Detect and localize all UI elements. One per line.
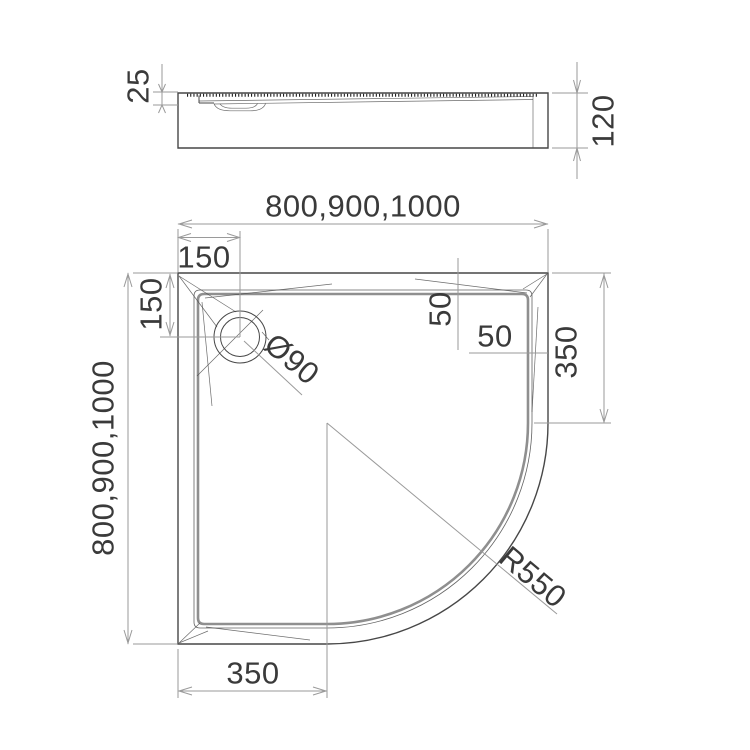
plan-dimensions: 800,900,1000 150 800,900,1000 150 50 50: [86, 189, 612, 699]
dim-corner-radius-label: R550: [493, 539, 574, 615]
dim-rim-top-label: 50: [423, 291, 458, 326]
dim-right-straight-label: 350: [549, 325, 584, 378]
side-view-outline: [178, 93, 548, 148]
plan-view: Ø90 R550 800,900,1000 150 800,900: [86, 189, 612, 699]
dim-rim-right-label: 50: [477, 319, 512, 354]
dim-total-height-label: 120: [586, 94, 621, 147]
side-view-dimensions: 25 120: [121, 62, 621, 179]
dim-bottom-straight-label: 350: [226, 656, 279, 691]
drain-bump-outline: [214, 104, 266, 111]
dim-drain-diameter-label: Ø90: [258, 326, 327, 391]
shower-tray-drawing: 25 120: [0, 0, 750, 750]
dim-depth-label: 800,900,1000: [86, 360, 121, 556]
dim-drain-offset-left-label: 150: [134, 277, 169, 330]
side-view: 25 120: [121, 62, 621, 179]
radius-annotation: R550: [327, 423, 573, 698]
technical-drawing-page: 25 120: [0, 0, 750, 750]
dim-drain-offset-top-label: 150: [177, 240, 230, 275]
dim-tray-depth-label: 25: [121, 68, 156, 103]
dim-width-label: 800,900,1000: [265, 189, 461, 224]
